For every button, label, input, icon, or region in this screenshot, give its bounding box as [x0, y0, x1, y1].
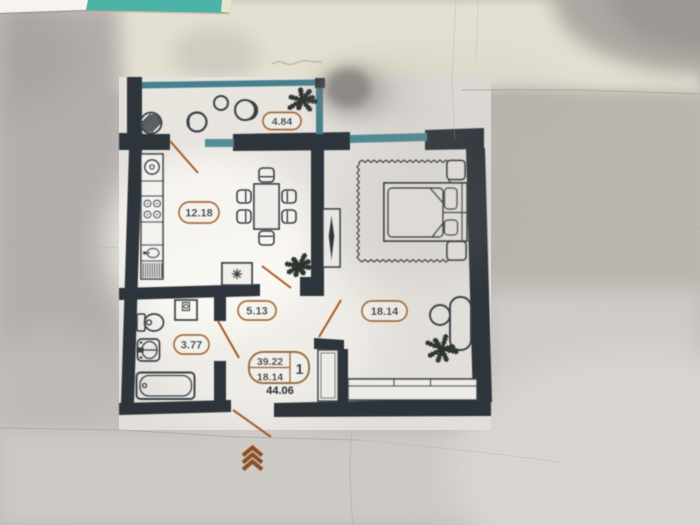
svg-text:12.18: 12.18	[185, 208, 213, 220]
svg-text:4.84: 4.84	[272, 116, 293, 128]
svg-text:39.22: 39.22	[257, 356, 283, 368]
svg-text:18.14: 18.14	[257, 372, 283, 384]
svg-text:5.13: 5.13	[246, 306, 267, 318]
svg-text:1: 1	[295, 361, 303, 378]
svg-text:44.06: 44.06	[266, 385, 294, 397]
svg-text:18.14: 18.14	[371, 306, 399, 318]
svg-text:3.77: 3.77	[181, 340, 202, 352]
